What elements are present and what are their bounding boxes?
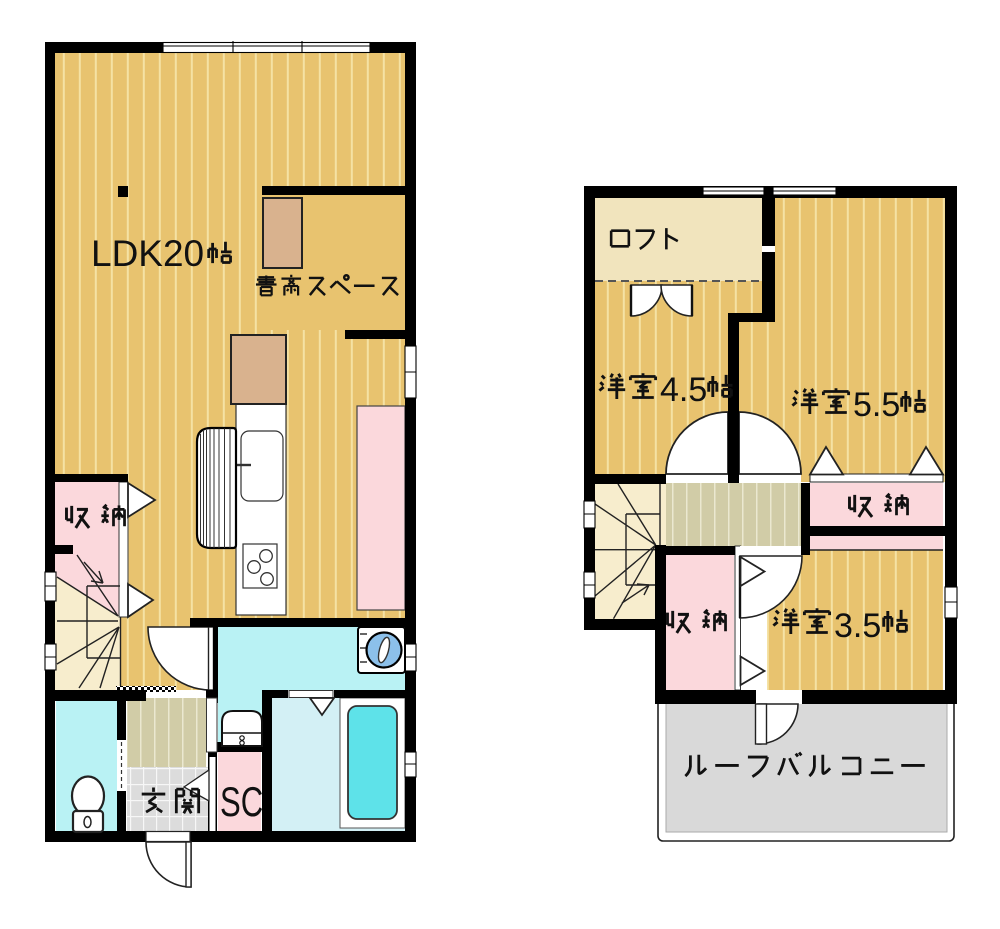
svg-text:3.5: 3.5 [834,607,881,645]
svg-text:4.5: 4.5 [660,371,707,409]
svg-text:5.5: 5.5 [853,386,900,424]
svg-text:SC: SC [220,778,263,825]
svg-text:LDK20: LDK20 [91,233,204,274]
